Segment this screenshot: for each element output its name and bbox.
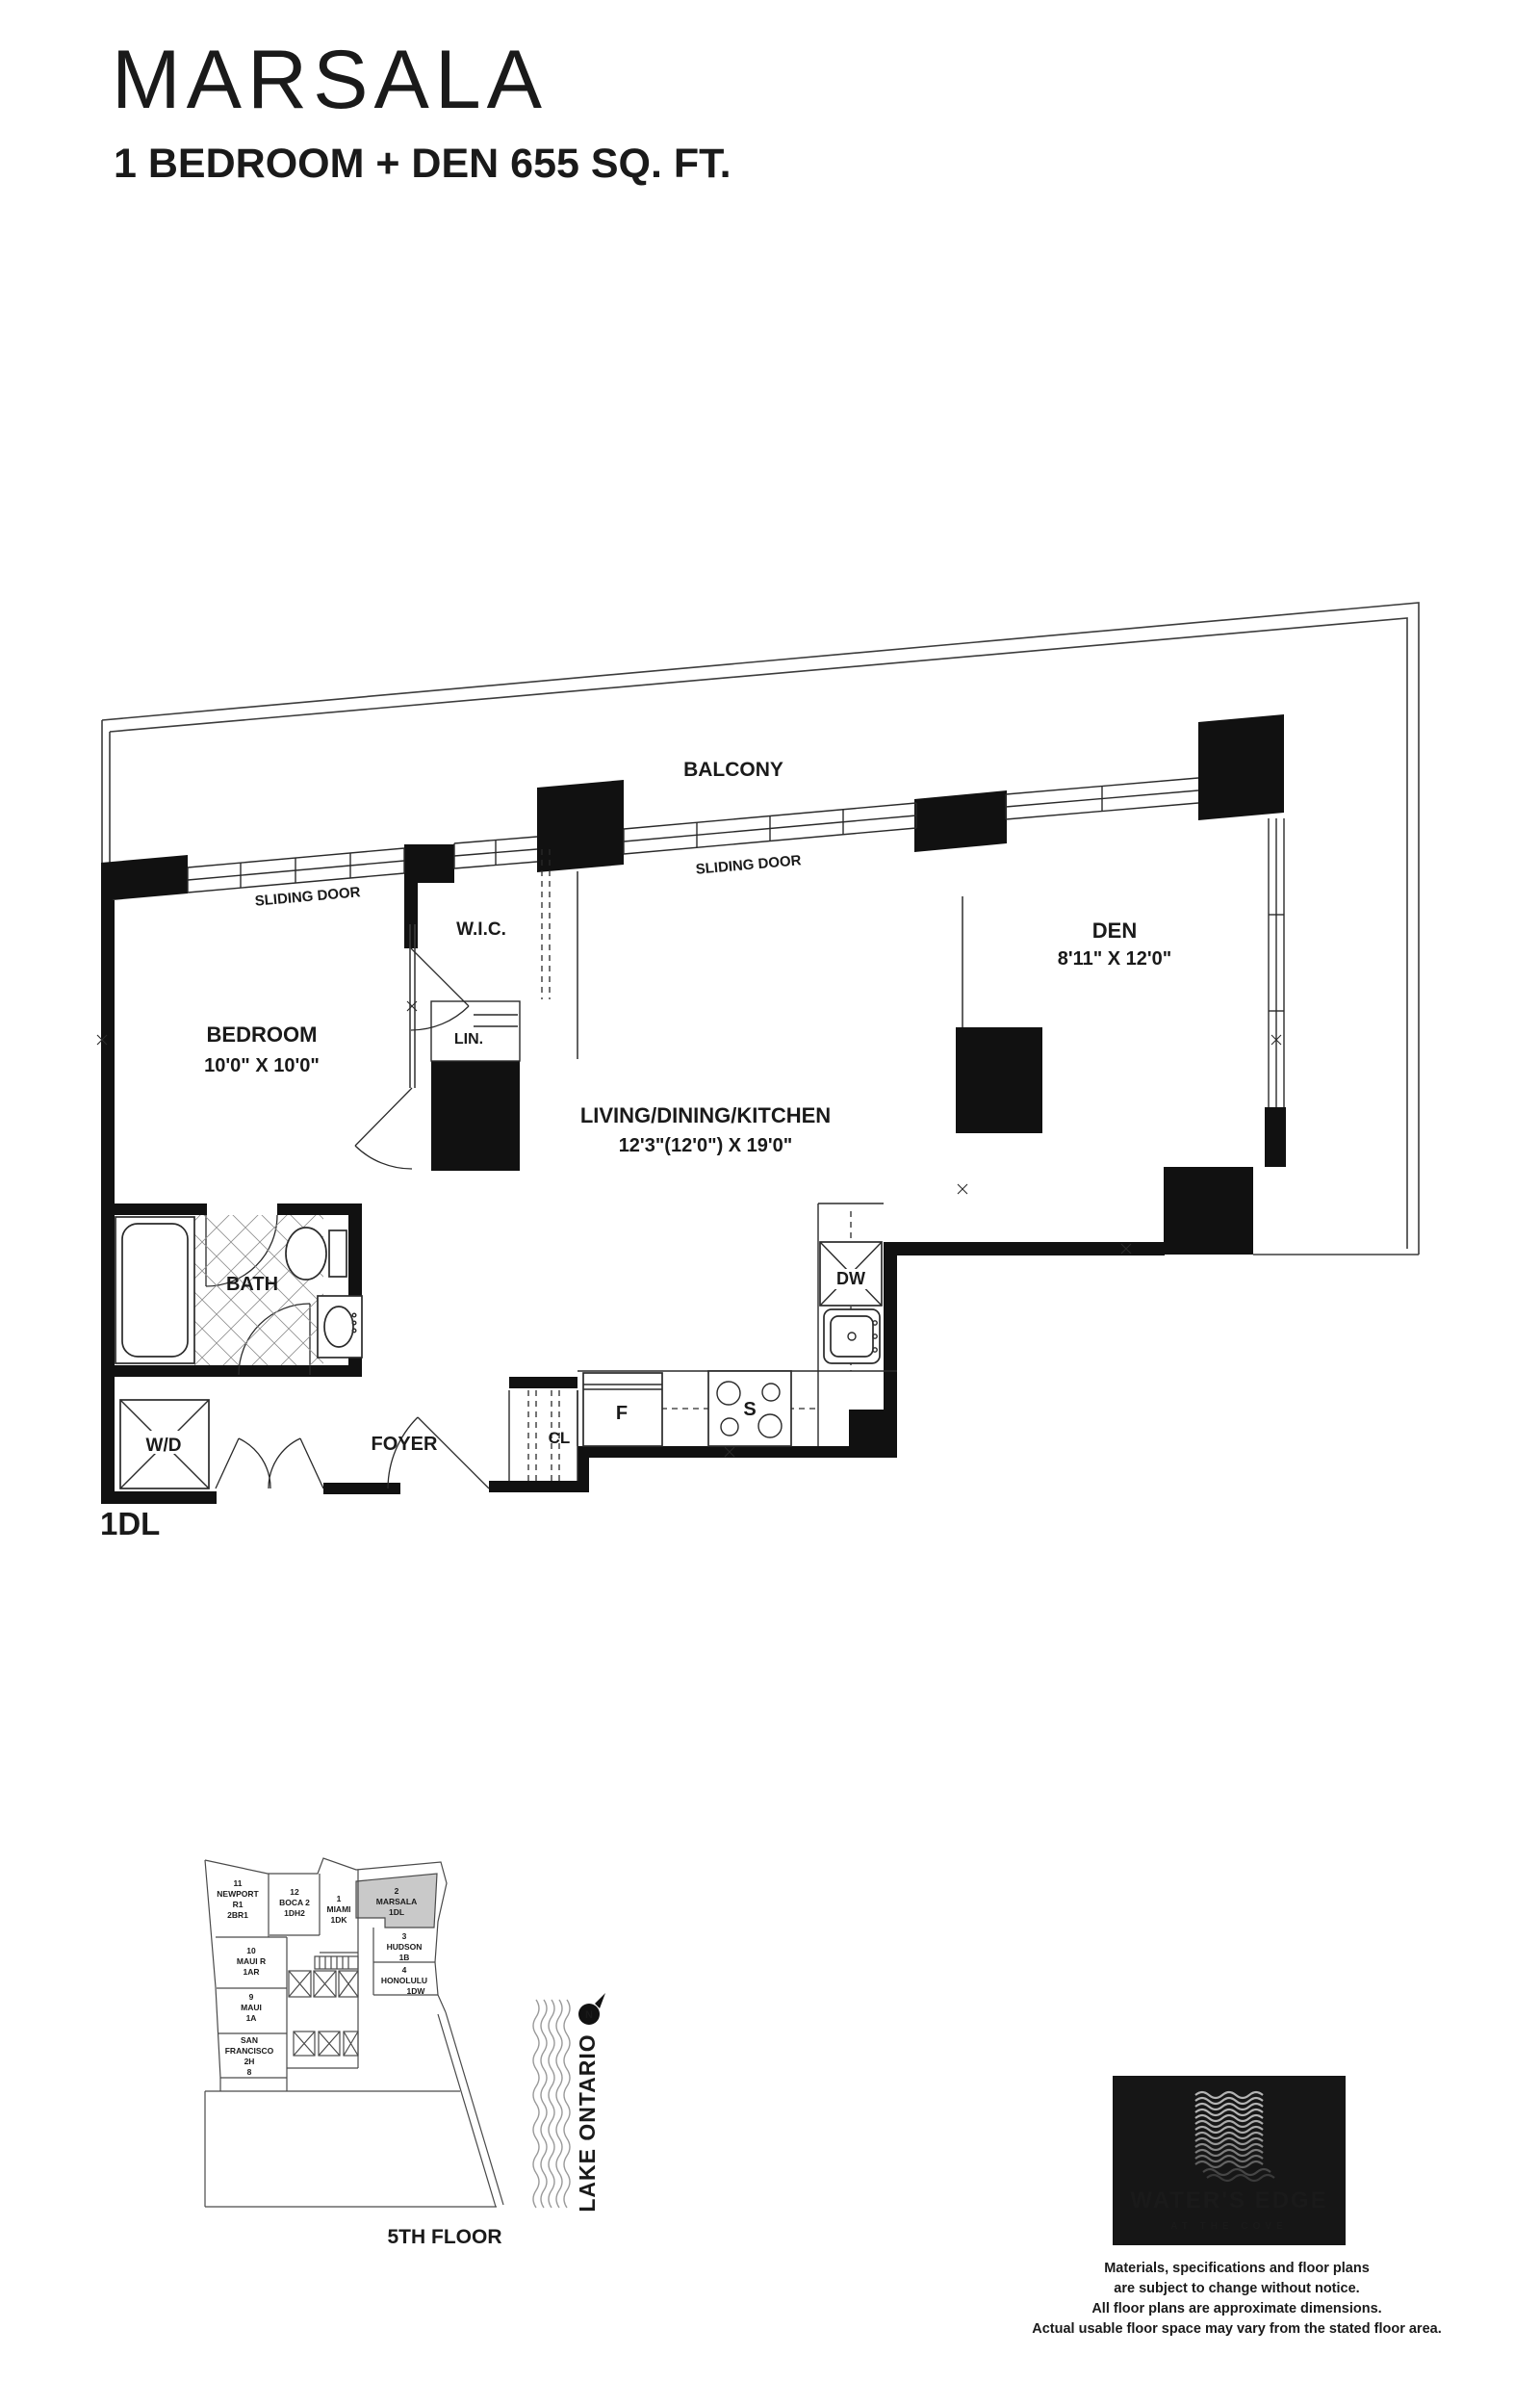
compass-icon: N bbox=[578, 1993, 605, 2025]
toilet-tank bbox=[329, 1230, 346, 1277]
logo-name: WATER'S EDGE bbox=[1130, 2187, 1327, 2213]
foyer-label: FOYER bbox=[372, 1434, 438, 1455]
floorplan-sheet: MARSALA 1 BEDROOM + DEN 655 SQ. FT. 1DL bbox=[0, 0, 1540, 2381]
disclaimer-line-2: are subject to change without notice. bbox=[1114, 2281, 1359, 2296]
keyplan-unit-4: 4 bbox=[402, 1965, 407, 1975]
living-label: LIVING/DINING/KITCHEN bbox=[580, 1103, 831, 1127]
keyplan-unit-12: 12 bbox=[290, 1887, 299, 1897]
disclaimer-line-4: Actual usable floor space may vary from … bbox=[1032, 2321, 1441, 2337]
floorplan-drawing: BALCONY SLIDING DOOR SLIDING DOOR W.I.C.… bbox=[0, 0, 1540, 2381]
wic-label: W.I.C. bbox=[456, 919, 506, 940]
stove-label: S bbox=[743, 1399, 756, 1420]
svg-text:FRANCISCO: FRANCISCO bbox=[225, 2046, 274, 2056]
svg-text:MARSALA: MARSALA bbox=[376, 1897, 418, 1906]
svg-text:MAUI: MAUI bbox=[241, 2003, 262, 2012]
living-dims: 12'3"(12'0") X 19'0" bbox=[619, 1135, 793, 1156]
svg-text:HONOLULU: HONOLULU bbox=[381, 1976, 427, 1985]
svg-text:8: 8 bbox=[247, 2067, 252, 2077]
floor-label: 5TH FLOOR bbox=[388, 2226, 502, 2248]
den-label: DEN bbox=[1092, 919, 1137, 943]
svg-text:1A: 1A bbox=[246, 2013, 257, 2023]
windows bbox=[188, 778, 1284, 1107]
keyplan-unit-8: SAN bbox=[241, 2035, 258, 2045]
waters-edge-logo: WATER'S EDGE AT THE COVE bbox=[1113, 2076, 1346, 2245]
bedroom-label: BEDROOM bbox=[207, 1022, 318, 1047]
dw-label: DW bbox=[836, 1269, 865, 1288]
lake-ontario: N LAKE ONTARIO bbox=[533, 1993, 605, 2213]
keyplan-unit-2-marsala: 2 bbox=[395, 1886, 399, 1896]
keyplan-elevators bbox=[289, 1971, 358, 2056]
svg-text:1DL: 1DL bbox=[389, 1907, 404, 1917]
keyplan-unit-3: 3 bbox=[402, 1931, 407, 1941]
svg-text:MIAMI: MIAMI bbox=[326, 1904, 350, 1914]
keyplan-unit-labels: 11 NEWPORT R1 2BR1 12 BOCA 2 1DH2 1 MIAM… bbox=[217, 1878, 427, 2077]
disclaimer-line-1: Materials, specifications and floor plan… bbox=[1104, 2261, 1370, 2276]
disclaimer-line-3: All floor plans are approximate dimensio… bbox=[1091, 2301, 1381, 2316]
keyplan-unit-9: 9 bbox=[249, 1992, 254, 2002]
bedroom-dims: 10'0" X 10'0" bbox=[204, 1055, 320, 1076]
wd-label: W/D bbox=[146, 1436, 182, 1456]
svg-text:1DH2: 1DH2 bbox=[284, 1908, 305, 1918]
den-dims: 8'11" X 12'0" bbox=[1058, 948, 1172, 970]
disclaimer: Materials, specifications and floor plan… bbox=[1032, 2261, 1441, 2337]
bath-sink bbox=[324, 1307, 353, 1347]
lake-label: LAKE ONTARIO bbox=[575, 2033, 600, 2212]
svg-text:N: N bbox=[585, 2009, 593, 2021]
keyplan-unit-1: 1 bbox=[337, 1894, 342, 1903]
svg-text:2BR1: 2BR1 bbox=[227, 1910, 248, 1920]
svg-text:MAUI R: MAUI R bbox=[237, 1956, 266, 1966]
fridge-label: F bbox=[616, 1403, 628, 1424]
balcony-outline bbox=[102, 603, 1419, 1255]
sliding-door-label-left: SLIDING DOOR bbox=[254, 884, 361, 910]
svg-text:NEWPORT: NEWPORT bbox=[217, 1889, 259, 1899]
sliding-door-label-right: SLIDING DOOR bbox=[695, 852, 802, 878]
keyplan bbox=[205, 1858, 503, 2207]
balcony-label: BALCONY bbox=[683, 759, 783, 781]
keyplan-unit-10: 10 bbox=[246, 1946, 256, 1955]
svg-text:R1: R1 bbox=[233, 1900, 244, 1909]
svg-text:1AR: 1AR bbox=[243, 1967, 259, 1977]
svg-text:HUDSON: HUDSON bbox=[387, 1942, 423, 1952]
bath-label: BATH bbox=[226, 1274, 278, 1295]
svg-text:1B: 1B bbox=[399, 1953, 410, 1962]
svg-text:1DK: 1DK bbox=[330, 1915, 347, 1925]
toilet bbox=[286, 1228, 326, 1280]
water-waves bbox=[533, 2000, 570, 2208]
cl-label: CL bbox=[549, 1429, 571, 1447]
svg-text:2H: 2H bbox=[244, 2057, 255, 2066]
svg-text:1DW: 1DW bbox=[407, 1986, 426, 1996]
lin-label: LIN. bbox=[454, 1031, 483, 1048]
svg-text:BOCA 2: BOCA 2 bbox=[279, 1898, 310, 1907]
logo-tagline: AT THE COVE bbox=[1170, 2221, 1287, 2232]
keyplan-unit-11: 11 bbox=[234, 1878, 243, 1888]
